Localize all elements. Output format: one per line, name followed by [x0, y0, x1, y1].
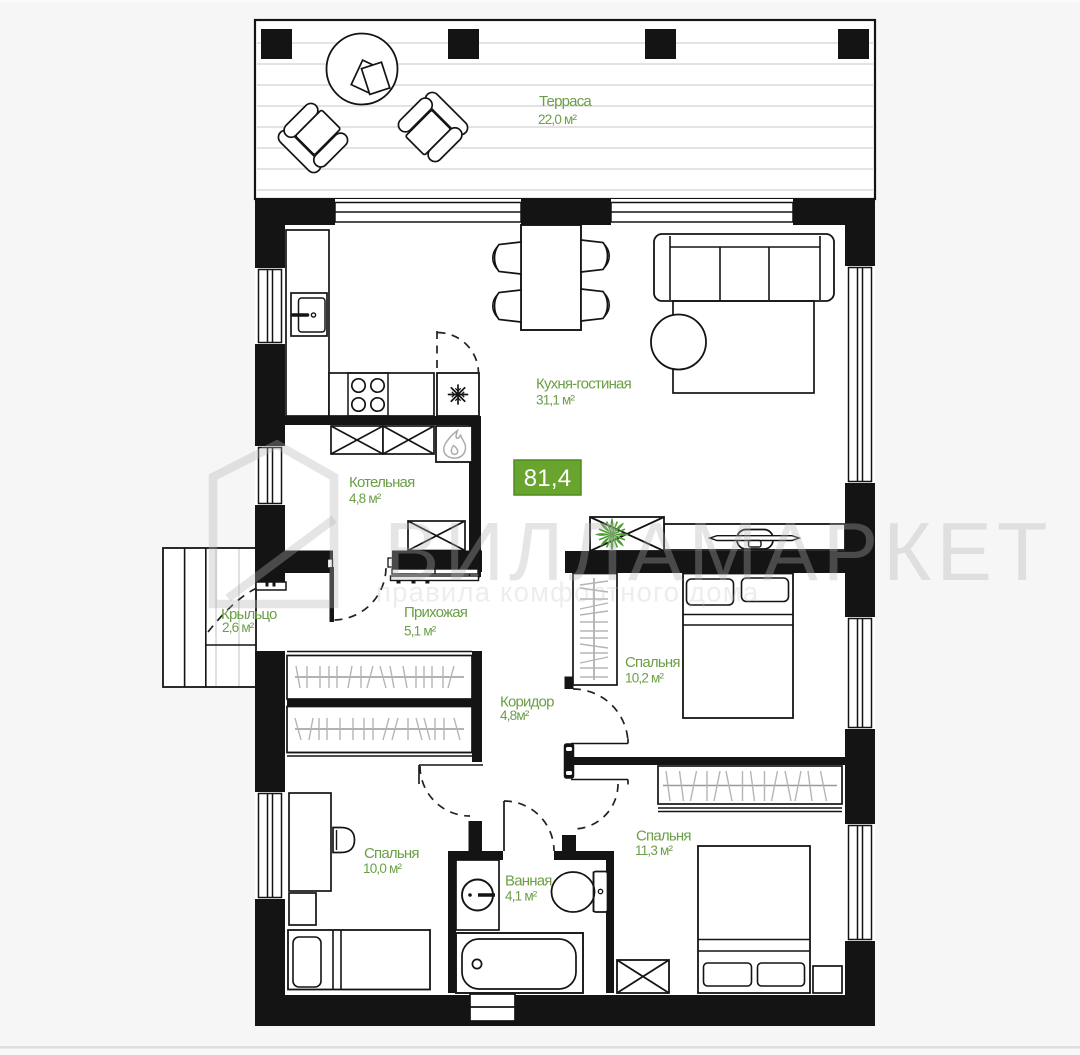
svg-text:31,1 м²: 31,1 м²: [536, 393, 576, 408]
svg-text:Спальня: Спальня: [364, 845, 419, 862]
svg-text:11,3 м²: 11,3 м²: [635, 843, 674, 858]
svg-text:Ванная: Ванная: [505, 873, 552, 890]
svg-text:Спальня: Спальня: [625, 654, 680, 671]
svg-text:Кухня-гостиная: Кухня-гостиная: [536, 376, 632, 393]
svg-text:Котельная: Котельная: [349, 474, 415, 491]
svg-text:10,2 м²: 10,2 м²: [625, 671, 665, 686]
svg-text:правила комфортного дома: правила комфортного дома: [376, 577, 759, 608]
svg-text:Спальня: Спальня: [636, 828, 691, 845]
svg-text:81,4: 81,4: [524, 465, 572, 492]
svg-text:2,6 м²: 2,6 м²: [222, 620, 255, 635]
svg-text:4,1 м²: 4,1 м²: [505, 889, 538, 904]
svg-text:22,0 м²: 22,0 м²: [538, 112, 578, 127]
svg-text:4,8 м²: 4,8 м²: [349, 491, 382, 506]
svg-text:5,1 м²: 5,1 м²: [404, 624, 437, 639]
svg-text:10,0 м²: 10,0 м²: [363, 861, 403, 876]
svg-text:Терраса: Терраса: [539, 93, 592, 110]
svg-text:4,8м²: 4,8м²: [500, 708, 530, 723]
